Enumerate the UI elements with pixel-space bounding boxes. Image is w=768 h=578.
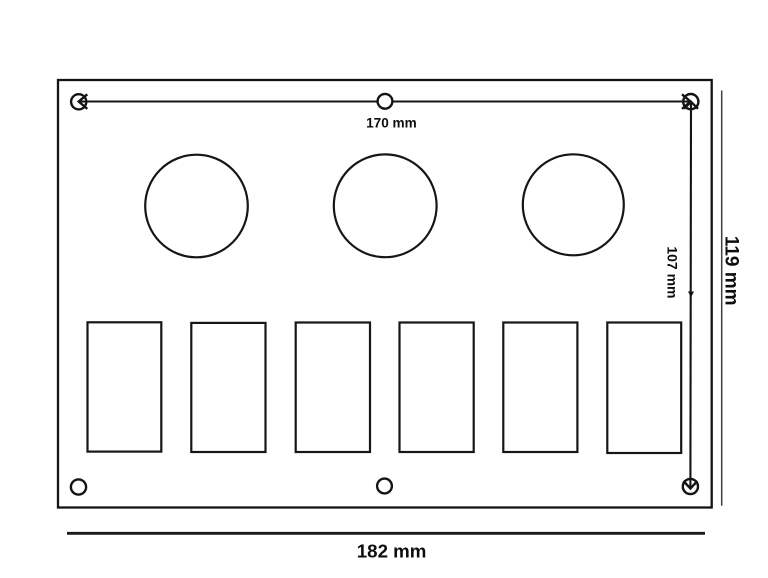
svg-text:182 mm: 182 mm bbox=[357, 540, 427, 561]
svg-text:170 mm: 170 mm bbox=[366, 116, 417, 131]
svg-text:107 mm: 107 mm bbox=[664, 246, 680, 298]
svg-text:119 mm: 119 mm bbox=[720, 236, 741, 306]
